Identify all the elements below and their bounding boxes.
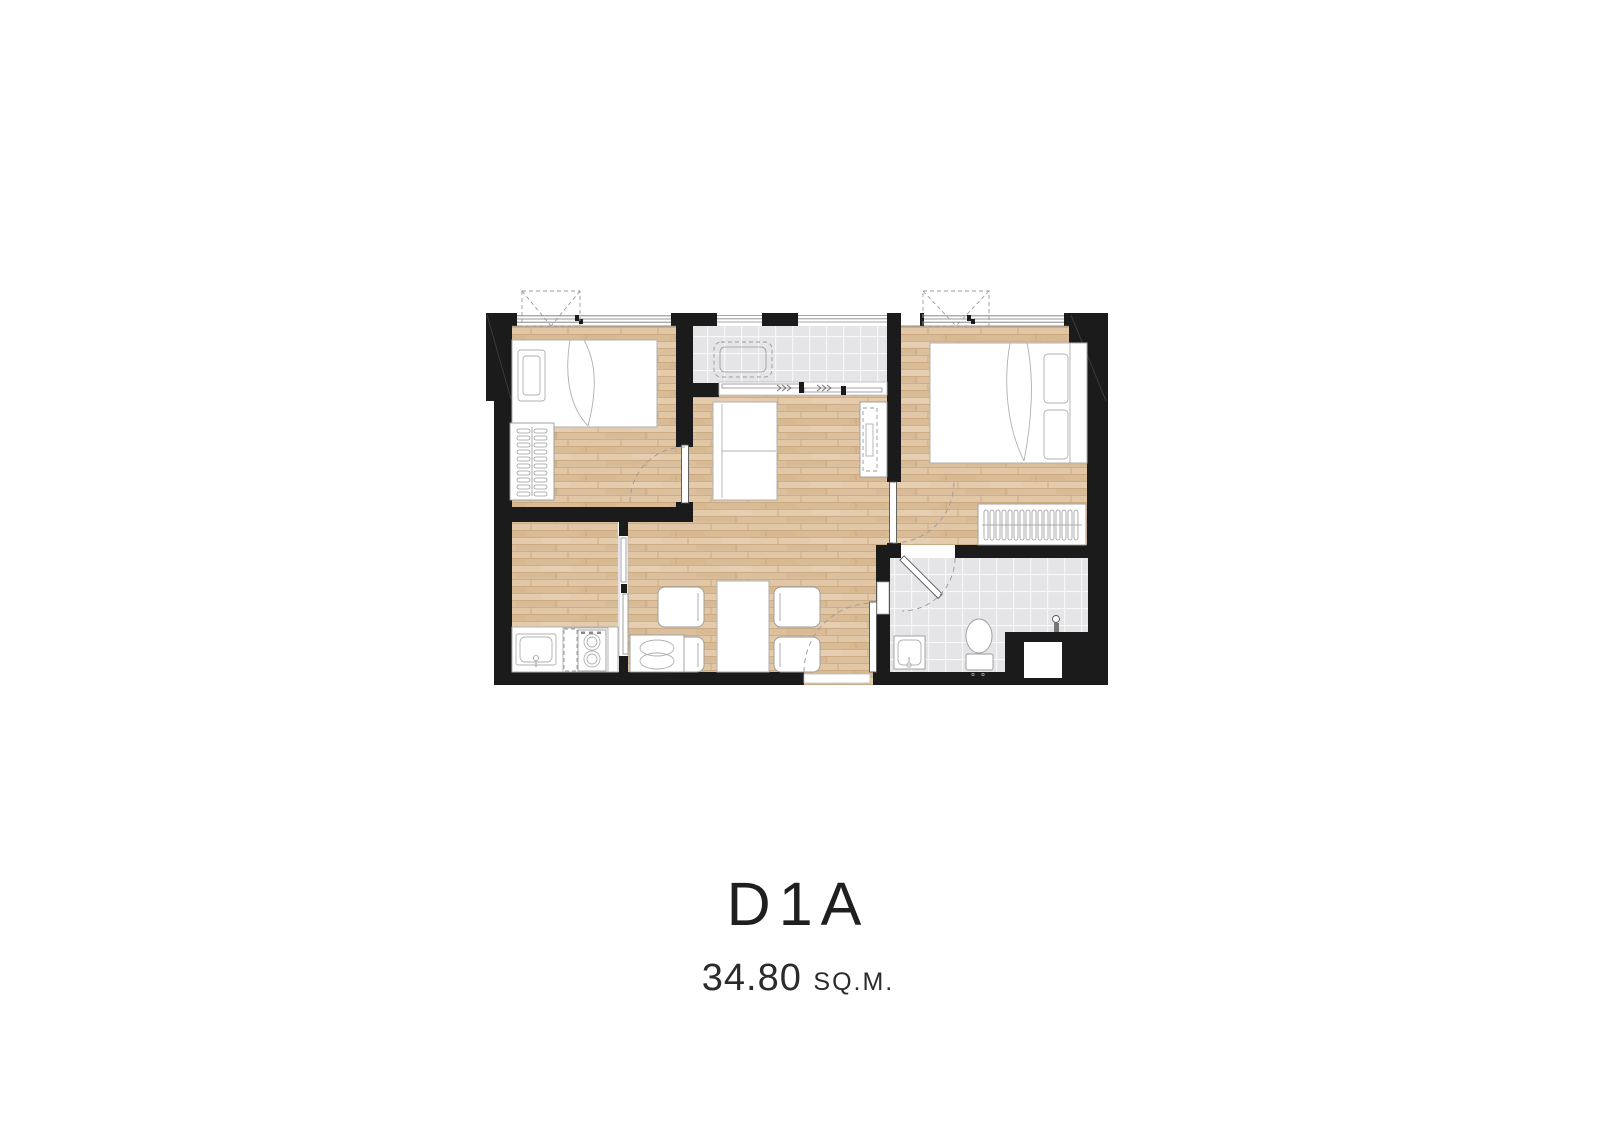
wall-bathroom-right xyxy=(1088,558,1108,632)
toilet xyxy=(966,619,993,676)
floor-plan xyxy=(486,285,1108,685)
wall-right xyxy=(1087,403,1108,545)
wall-bottom-entrance-jamb xyxy=(873,672,890,685)
balcony-sliding-door xyxy=(719,382,887,395)
kitchen-sliding-partition xyxy=(619,522,628,672)
wardrobe-bedroom-2 xyxy=(978,504,1086,545)
caption: D1A 34.80 SQ.M. xyxy=(0,874,1596,997)
dining-chair xyxy=(774,587,820,627)
bedroom-1-door xyxy=(682,445,689,503)
unit-area: 34.80 SQ.M. xyxy=(0,959,1596,997)
dining-table xyxy=(717,581,769,672)
bedroom-2-window xyxy=(901,313,1069,326)
wardrobe-bedroom-1 xyxy=(510,423,554,500)
wall-bedroom-1-bottom xyxy=(494,507,693,522)
floor-plan-svg xyxy=(486,285,1108,685)
wall-balcony-pier xyxy=(762,313,798,326)
bathroom-wall-panel xyxy=(877,582,889,614)
balcony-railing-right xyxy=(798,313,887,326)
wall-bedroom-2-left xyxy=(887,313,901,482)
wall-bottom-left xyxy=(494,672,804,685)
bedroom-2-door xyxy=(890,482,897,543)
page: D1A 34.80 SQ.M. xyxy=(0,0,1600,1132)
bathroom-doorway-floor xyxy=(900,545,955,558)
area-unit: SQ.M. xyxy=(813,968,894,996)
tv-console xyxy=(860,402,887,477)
wall-bedroom-1-right xyxy=(676,313,693,447)
single-bed xyxy=(512,340,657,427)
balcony-floor xyxy=(693,326,887,384)
area-value: 34.80 xyxy=(702,957,802,999)
entrance-sill xyxy=(804,674,870,683)
wall-balcony-top-left xyxy=(676,313,717,326)
dining-chair xyxy=(774,637,820,672)
wall-bathroom-top-right xyxy=(955,545,1108,558)
sofa xyxy=(713,402,777,500)
dining-chair xyxy=(658,587,704,627)
entrance-door xyxy=(870,602,877,672)
wall-left xyxy=(494,401,512,672)
low-cabinet xyxy=(630,635,684,672)
wall-balcony-slider-block xyxy=(693,383,719,397)
wall-bathroom-top-left xyxy=(876,545,900,558)
wall-bedroom-1-door-jamb xyxy=(676,502,693,522)
wall-bathroom-left xyxy=(876,558,890,672)
balcony-railing-left xyxy=(717,313,762,326)
unit-name: D1A xyxy=(0,874,1596,935)
wash-basin xyxy=(894,636,925,669)
service-shaft xyxy=(1024,642,1062,678)
wall-bathroom-bottom xyxy=(890,672,1022,685)
bedroom-1-window xyxy=(512,313,676,326)
